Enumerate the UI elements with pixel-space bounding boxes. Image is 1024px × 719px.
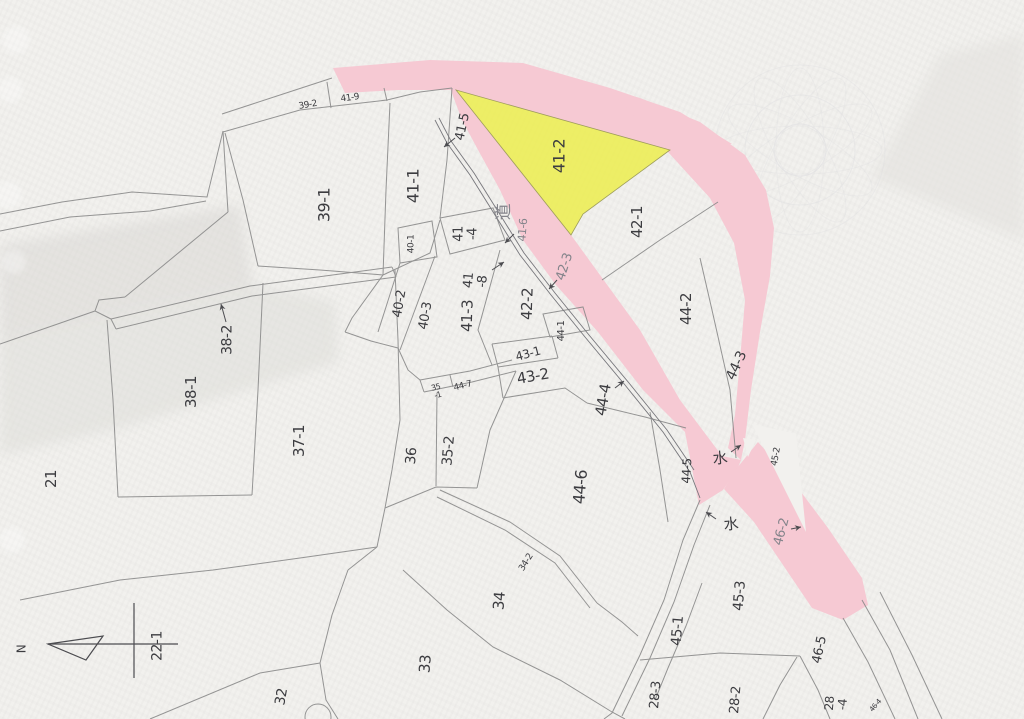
cadastral-map-canvas: 39-241-939-141-141-541-2道41-641 -440-141… <box>0 0 1024 719</box>
map-geometry <box>0 0 1024 719</box>
north-arrow <box>48 636 178 660</box>
